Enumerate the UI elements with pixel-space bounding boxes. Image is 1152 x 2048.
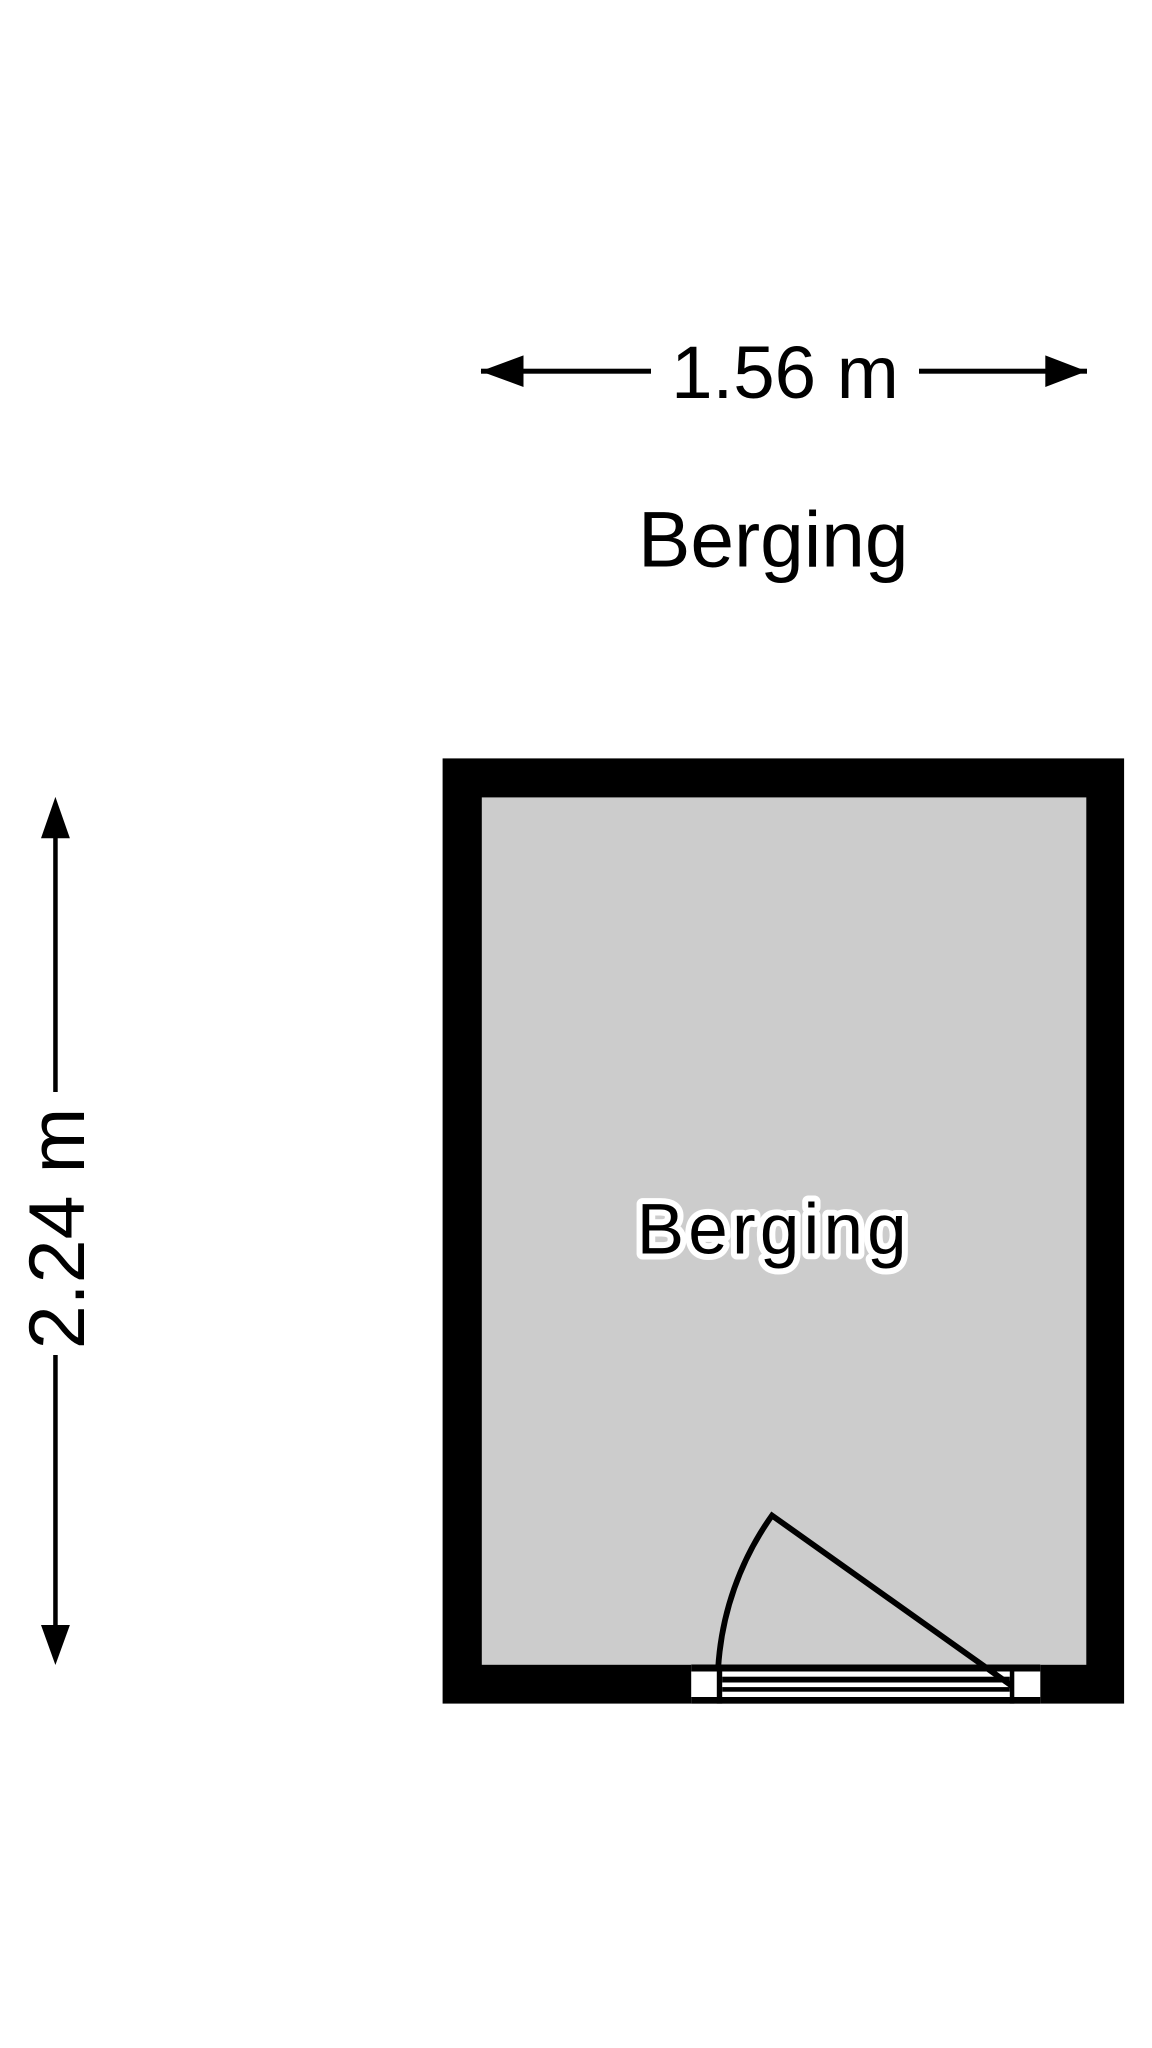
svg-text:2.24 m: 2.24 m [12,1108,101,1350]
svg-text:1.56 m: 1.56 m [671,331,899,414]
svg-text:Berging: Berging [637,1190,911,1269]
svg-text:Berging: Berging [638,496,909,584]
